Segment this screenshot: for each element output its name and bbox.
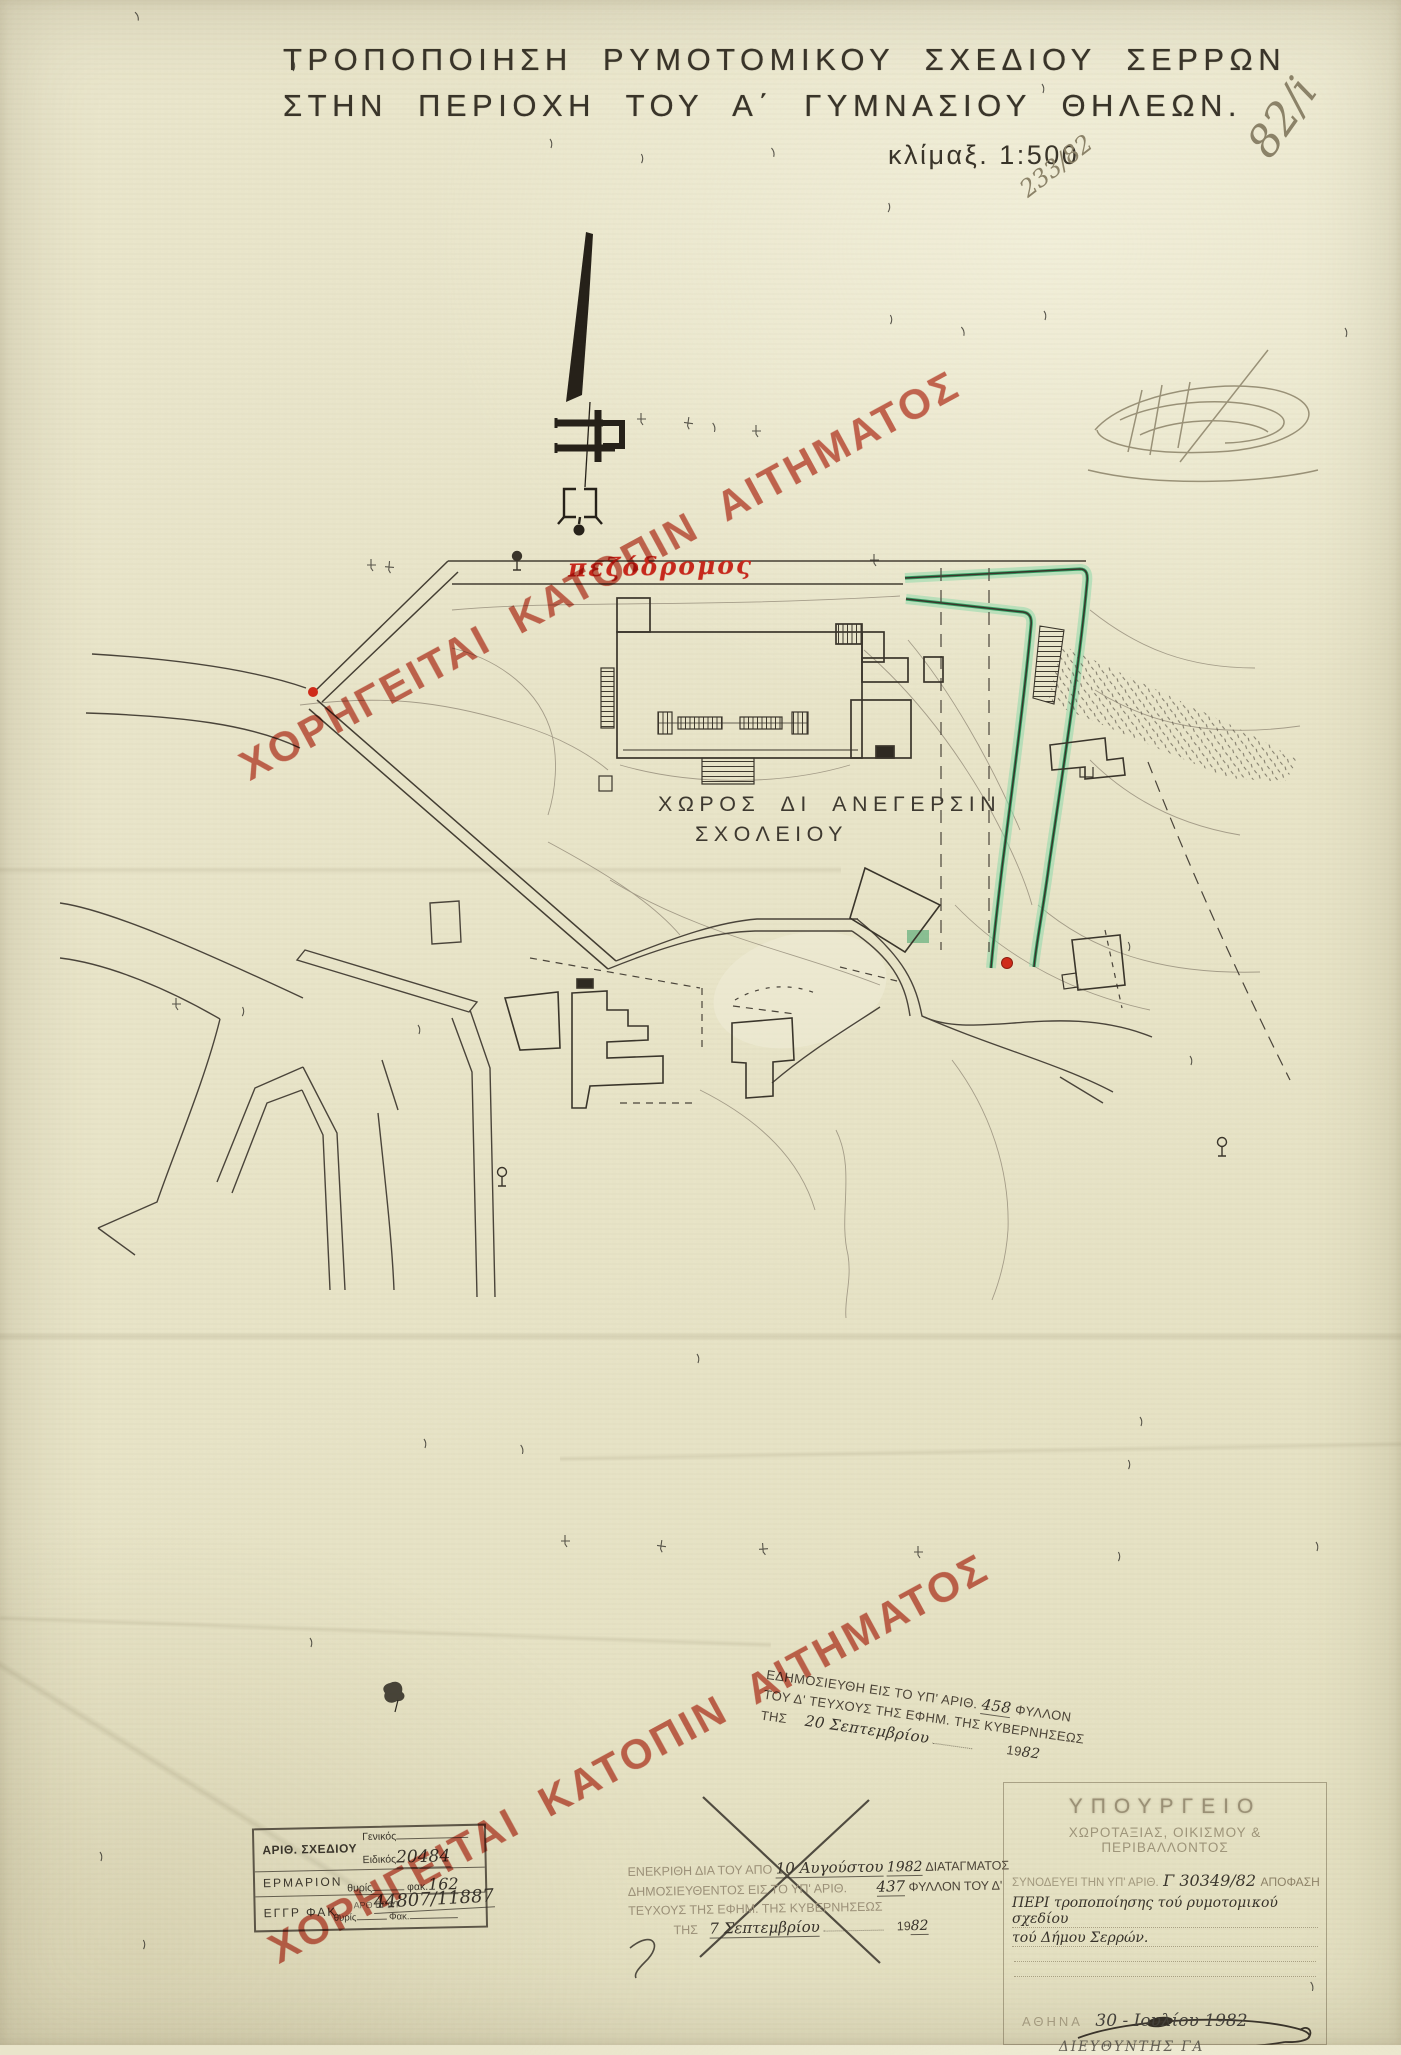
- approval-line4-prefix: ΤΗΣ: [673, 1923, 698, 1937]
- approval-publication-date: 7 Σεπτεμβρίου: [709, 1918, 820, 1939]
- dotted-rule: [1014, 1947, 1316, 1962]
- request-watermark-upper: ΧΟΡΗΓΕΙΤΑΙ ΚΑΤΟΠΙΝ ΑΙΤΗΜΑΤΟΣ: [232, 360, 968, 790]
- paper-crease: [0, 1615, 770, 1649]
- drawing-title-line1: ΤΡΟΠΟΠΟΙΗΣΗ ΡΥΜΟΤΟΜΙΚΟΥ ΣΧΕΔΙΟΥ ΣΕΡΡΩΝ: [283, 42, 1286, 78]
- approval-year-prefix: 19: [897, 1919, 911, 1933]
- approval-line1-suffix: ΔΙΑΤΑΓΜΑΤΟΣ: [925, 1858, 1009, 1873]
- north-arrow: [556, 232, 622, 536]
- approval-line1-prefix: ΕΝΕΚΡΙΘΗ ΔΙΑ ΤΟΥ ΑΠΟ: [627, 1863, 772, 1880]
- drawing-number-label: ΑΡΙΘ. ΣΧΕΔΙΟΥ: [262, 1841, 357, 1857]
- ministry-stamp-box: ΥΠΟΥΡΓΕΙΟ ΧΩΡΟΤΑΞΙΑΣ, ΟΙΚΙΣΜΟΥ & ΠΕΡΙΒΑΛ…: [1003, 1782, 1327, 2045]
- scanned-plan-document: { "page": { "title_line1": "ΤΡΟΠΟΠΟΙΗΣΗ …: [0, 0, 1401, 2045]
- red-survey-dot: [308, 687, 318, 697]
- approval-gazette-number: 437: [876, 1877, 905, 1896]
- paper-crease: [560, 1441, 1401, 1463]
- green-highlight-boundary: [905, 569, 1087, 968]
- drawing-title-line2: ΣΤΗΝ ΠΕΡΙΟΧΗ ΤΟΥ Α΄ ΓΥΜΝΑΣΙΟΥ ΘΗΛΕΩΝ.: [283, 88, 1242, 124]
- decision-date: 30 - Ιουλίου 1982: [1095, 2011, 1247, 2031]
- decision-ref-suffix: ΑΠΟΦΑΣΗ: [1260, 1875, 1319, 1889]
- city-label: ΑΘΗΝΑ: [1022, 2014, 1083, 2029]
- school-building: [599, 598, 943, 791]
- school-site-label-line2: ΣΧΟΛΕΙΟΥ: [695, 822, 848, 847]
- embankment-stipple: [1048, 645, 1298, 782]
- dashed-parcel-lines: [530, 568, 1290, 1103]
- dotted-rule: [1014, 1962, 1316, 1977]
- cabinet-label: ΕΡΜΑΡΙΟΝ: [263, 1875, 343, 1891]
- decision-subject-line1: ΠΕΡΙ τροποποίησης τού ρυμοτομικού σχεδίο…: [1012, 1895, 1318, 1928]
- red-survey-dot: [1002, 958, 1013, 969]
- paper-crease: [0, 1332, 1401, 1341]
- school-site-label-line1: ΧΩΡΟΣ ΔΙ ΑΝΕΓΕΡΣΙΝ: [658, 792, 1001, 817]
- ink-splotch: [383, 1682, 404, 1712]
- decision-subject-line2: τού Δήμου Σερρών.: [1012, 1930, 1318, 1947]
- decision-ref-prefix: ΣΥΝΟΔΕΥΕΙ ΤΗΝ ΥΠ' ΑΡΙΘ.: [1012, 1877, 1159, 1889]
- approval-decree-year: 1982: [887, 1859, 923, 1877]
- decision-ref-number: Γ 30349/82: [1163, 1871, 1256, 1890]
- signer-title: ΔΙΕΥΘΥΝΤΗΣ ΓΑ: [1059, 2039, 1326, 2055]
- pencil-scribble: [1088, 350, 1318, 481]
- road-network: [60, 654, 1152, 1297]
- ministry-subheader: ΧΩΡΟΤΑΞΙΑΣ, ΟΙΚΙΣΜΟΥ & ΠΕΡΙΒΑΛΛΟΝΤΟΣ: [1004, 1825, 1326, 1855]
- erasure-patch: [701, 914, 899, 1065]
- approval-line2-suffix: ΦΥΛΛΟΝ ΤΟΥ Δ': [908, 1879, 1002, 1895]
- stairs-hatch: [1033, 626, 1064, 704]
- approval-year: 82: [911, 1918, 929, 1935]
- approval-stamp: ΕΝΕΚΡΙΘΗ ΔΙΑ ΤΟΥ ΑΠΟ 10 Αυγούστου 1982 Δ…: [627, 1856, 978, 1941]
- pencil-file-number: 82/i: [1237, 68, 1327, 167]
- contour-lines: [300, 596, 1300, 1318]
- approval-decree-date: 10 Αυγούστου: [776, 1858, 884, 1879]
- approval-line2-prefix: ΔΗΜΟΣΙΕΥΘΕΝΤΟΣ ΕΙΣ ΤΟ ΥΠ' ΑΡΙΘ.: [628, 1881, 847, 1899]
- street-lamp-symbols: [498, 552, 1227, 1187]
- paper-crease: [0, 866, 841, 874]
- site-boundary: [309, 561, 1086, 969]
- ministry-header: ΥΠΟΥΡΓΕΙΟ: [1004, 1795, 1326, 1819]
- publication-year: 82: [1021, 1744, 1042, 1762]
